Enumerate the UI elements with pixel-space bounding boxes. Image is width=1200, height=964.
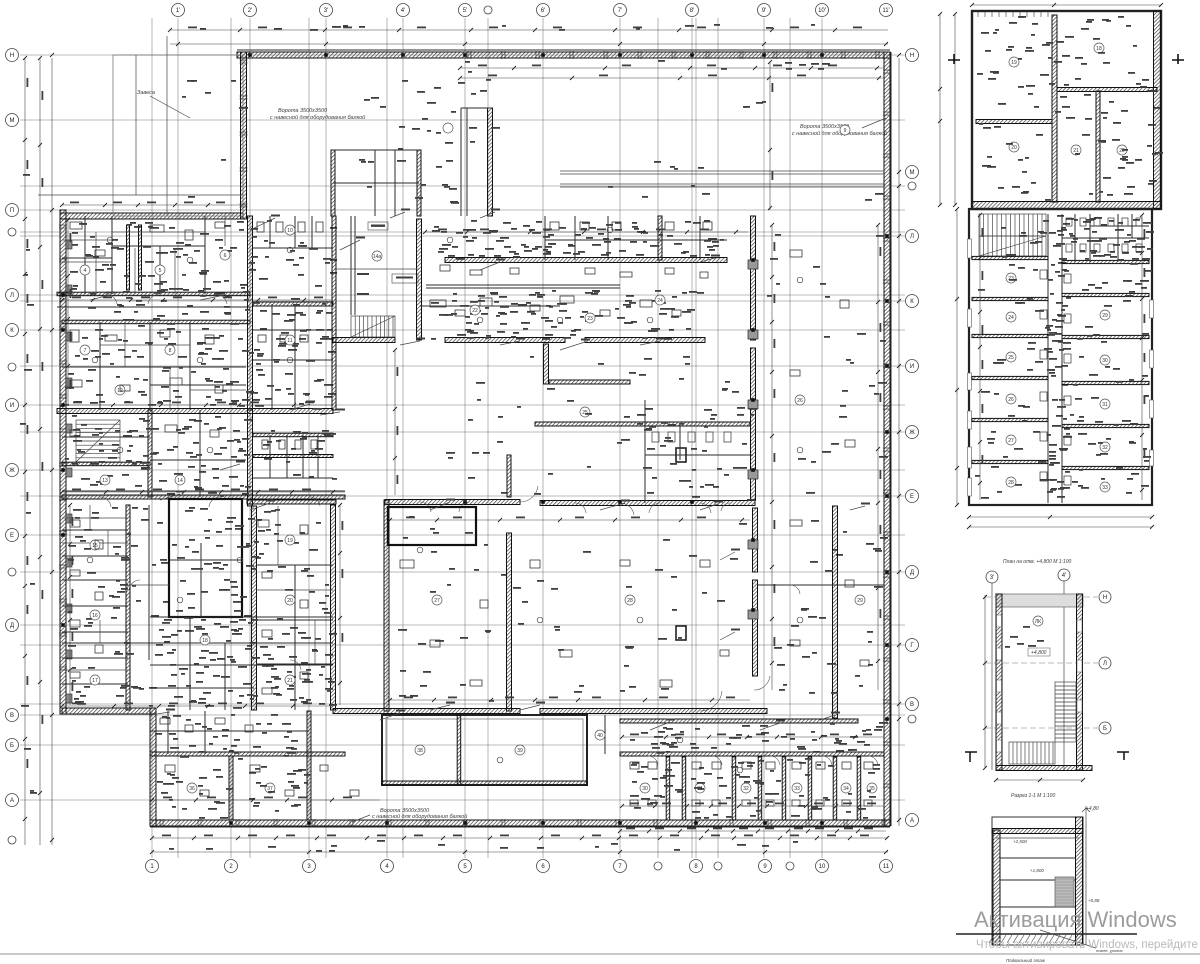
svg-text:20: 20: [1011, 145, 1017, 151]
svg-text:9: 9: [844, 128, 847, 134]
svg-text:3': 3': [324, 8, 328, 14]
svg-text:4': 4': [401, 8, 405, 14]
svg-text:Д: Д: [910, 570, 914, 576]
svg-text:+0,88: +0,88: [1088, 898, 1100, 903]
svg-text:Ворота 3500х3500: Ворота 3500х3500: [278, 108, 328, 114]
svg-text:34: 34: [843, 786, 849, 792]
svg-text:Е: Е: [10, 533, 14, 539]
svg-text:4: 4: [84, 268, 87, 274]
svg-text:1': 1': [176, 8, 180, 14]
svg-text:25: 25: [582, 410, 588, 416]
svg-text:Л: Л: [910, 234, 914, 240]
svg-text:5': 5': [463, 8, 467, 14]
svg-text:29: 29: [1102, 313, 1108, 319]
svg-text:Б: Б: [10, 743, 14, 749]
svg-text:21: 21: [287, 678, 293, 684]
svg-text:с навесной для оборудования ба: с навесной для оборудования балкой: [372, 813, 467, 820]
svg-text:Разрез 1-1 М 1:100: Разрез 1-1 М 1:100: [1011, 793, 1055, 799]
svg-text:32: 32: [1102, 445, 1108, 451]
svg-text:3': 3': [990, 575, 994, 581]
svg-text:37: 37: [267, 786, 273, 792]
svg-text:4': 4': [1062, 573, 1066, 579]
svg-text:8: 8: [169, 348, 172, 354]
svg-text:14a: 14a: [373, 254, 382, 260]
svg-text:26: 26: [797, 398, 803, 404]
svg-text:32: 32: [743, 786, 749, 792]
svg-text:18: 18: [1096, 46, 1102, 52]
svg-text:19: 19: [1011, 60, 1017, 66]
svg-text:Н: Н: [910, 53, 914, 59]
svg-text:Активация Windows: Активация Windows: [974, 907, 1177, 932]
svg-text:К: К: [10, 328, 14, 334]
svg-text:И: И: [10, 403, 14, 409]
svg-text:К: К: [910, 299, 914, 305]
svg-text:10: 10: [819, 864, 826, 870]
svg-text:10: 10: [287, 228, 293, 234]
svg-text:+1,800: +1,800: [1030, 868, 1044, 873]
svg-text:Н: Н: [1103, 595, 1107, 601]
svg-text:Ж: Ж: [909, 430, 915, 436]
svg-text:В: В: [910, 702, 914, 708]
svg-text:М: М: [10, 118, 15, 124]
svg-text:7: 7: [84, 348, 87, 354]
svg-text:27: 27: [1008, 438, 1014, 444]
svg-text:11': 11': [882, 8, 889, 14]
svg-text:38: 38: [417, 748, 423, 754]
svg-text:Б: Б: [1103, 726, 1107, 732]
svg-text:14: 14: [177, 478, 183, 484]
svg-text:20: 20: [287, 598, 293, 604]
svg-text:25: 25: [1008, 355, 1014, 361]
svg-text:11: 11: [883, 864, 890, 870]
svg-text:30: 30: [642, 786, 648, 792]
svg-text:10': 10': [818, 8, 826, 14]
svg-text:24: 24: [657, 298, 663, 304]
svg-text:7': 7': [618, 8, 622, 14]
svg-text:19: 19: [287, 538, 293, 544]
svg-text:А: А: [910, 818, 914, 824]
svg-text:А: А: [10, 798, 14, 804]
svg-text:16: 16: [92, 613, 98, 619]
svg-text:31: 31: [1102, 402, 1108, 408]
svg-text:23: 23: [587, 316, 593, 322]
svg-text:8': 8': [690, 8, 694, 14]
svg-text:39: 39: [517, 748, 523, 754]
svg-text:М: М: [910, 170, 915, 176]
svg-text:5: 5: [159, 268, 162, 274]
svg-text:Подвальный этаж: Подвальный этаж: [1006, 957, 1046, 963]
svg-text:29: 29: [857, 598, 863, 604]
svg-text:33: 33: [1102, 485, 1108, 491]
svg-text:30: 30: [1102, 358, 1108, 364]
svg-text:28: 28: [627, 598, 633, 604]
svg-text:+4,80: +4,80: [1086, 806, 1099, 812]
svg-text:с навесной для оборудования ба: с навесной для оборудования балкой: [270, 114, 365, 121]
svg-text:+4,800: +4,800: [1031, 650, 1047, 656]
svg-text:9': 9': [762, 8, 766, 14]
svg-text:ЛК: ЛК: [1035, 619, 1041, 625]
svg-text:26: 26: [1008, 397, 1014, 403]
svg-text:40: 40: [597, 733, 603, 739]
svg-text:Е: Е: [910, 494, 914, 500]
svg-text:6': 6': [541, 8, 545, 14]
svg-text:24: 24: [1008, 315, 1014, 321]
svg-text:18: 18: [202, 638, 208, 644]
svg-text:+2,500: +2,500: [1013, 839, 1027, 844]
svg-text:22: 22: [472, 308, 478, 314]
svg-text:2': 2': [248, 8, 252, 14]
svg-text:17: 17: [92, 678, 98, 684]
svg-text:21: 21: [1073, 148, 1079, 154]
svg-text:27: 27: [434, 598, 440, 604]
svg-text:Л: Л: [1103, 661, 1107, 667]
svg-text:36: 36: [189, 786, 195, 792]
svg-text:Завеса: Завеса: [137, 90, 155, 96]
svg-text:23: 23: [1008, 276, 1014, 282]
svg-text:П: П: [10, 208, 14, 214]
svg-text:6: 6: [224, 253, 227, 259]
svg-text:с навесной для оборудования ба: с навесной для оборудования балкой: [792, 130, 887, 137]
svg-text:Чтобы активировать Windows, пе: Чтобы активировать Windows, перейдите в …: [976, 939, 1200, 951]
svg-text:Л: Л: [10, 293, 14, 299]
svg-text:Н: Н: [10, 53, 14, 59]
svg-text:33: 33: [794, 786, 800, 792]
svg-text:Д: Д: [10, 623, 14, 629]
svg-text:В: В: [10, 713, 14, 719]
svg-text:11: 11: [287, 338, 292, 344]
svg-text:Ж: Ж: [9, 468, 15, 474]
svg-text:28: 28: [1008, 480, 1014, 486]
svg-text:И: И: [910, 364, 914, 370]
svg-text:План на отм. +4,800 М 1:100: План на отм. +4,800 М 1:100: [1003, 559, 1071, 565]
svg-text:13: 13: [102, 478, 108, 484]
